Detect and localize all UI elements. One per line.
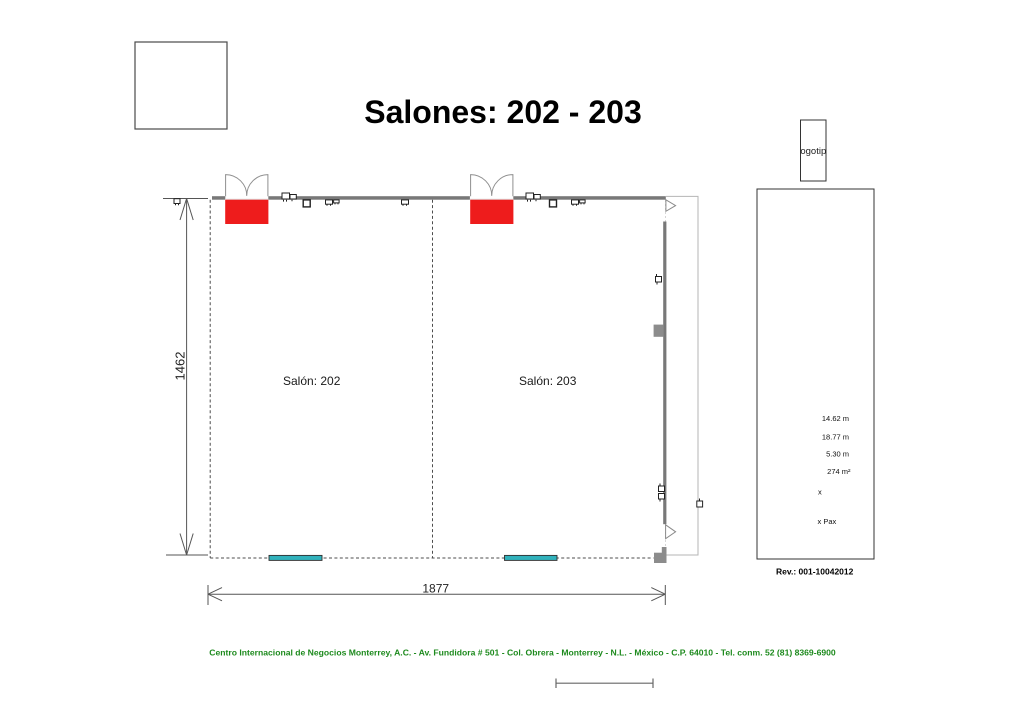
svg-text:14.62 m: 14.62 m: [822, 414, 849, 423]
svg-text:Salones: 202 - 203: Salones: 202 - 203: [364, 94, 641, 130]
svg-text:x Pax: x Pax: [818, 517, 837, 526]
svg-text:Rev.: 001-10042012: Rev.: 001-10042012: [776, 567, 854, 577]
svg-text:1462: 1462: [173, 352, 188, 381]
svg-text:1877: 1877: [422, 582, 449, 596]
svg-text:x: x: [818, 488, 822, 497]
svg-text:5.30 m: 5.30 m: [826, 450, 849, 459]
svg-text:Centro Internacional de Negoci: Centro Internacional de Negocios Monterr…: [209, 648, 836, 658]
svg-text:274 m²: 274 m²: [827, 467, 851, 476]
svg-text:ogotip: ogotip: [800, 146, 826, 157]
svg-text:18.77 m: 18.77 m: [822, 433, 849, 442]
svg-text:Salón: 203: Salón: 203: [519, 374, 577, 388]
svg-text:Salón: 202: Salón: 202: [283, 374, 341, 388]
